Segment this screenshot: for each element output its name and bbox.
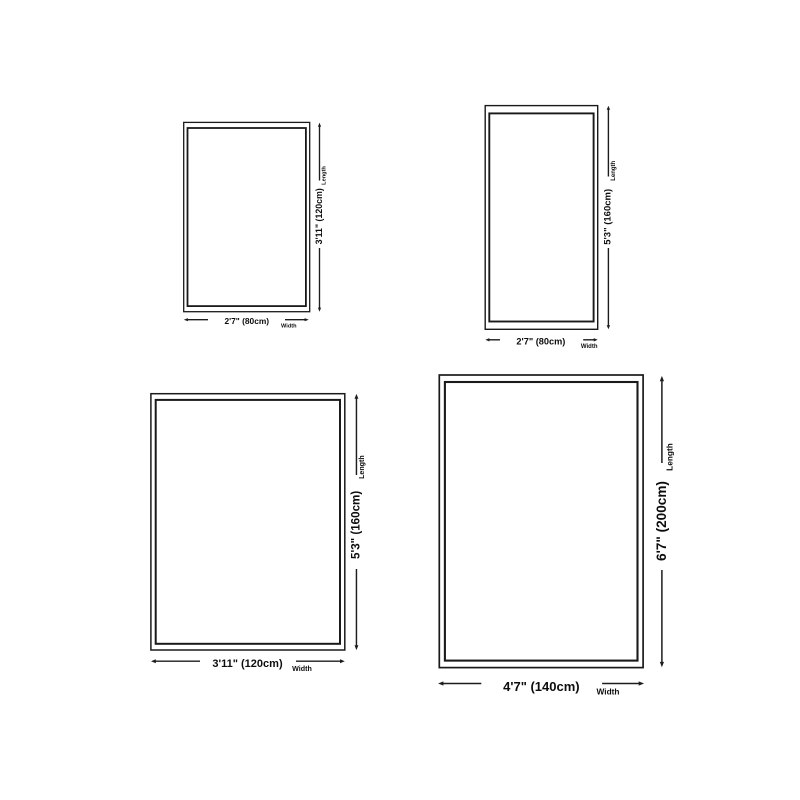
- svg-text:2'7" (80cm): 2'7" (80cm): [224, 316, 269, 326]
- svg-text:6'7" (200cm): 6'7" (200cm): [654, 481, 669, 561]
- svg-text:Length: Length: [611, 160, 617, 180]
- svg-text:Length: Length: [358, 455, 366, 479]
- svg-text:5'3" (160cm): 5'3" (160cm): [349, 491, 362, 559]
- svg-text:2'7" (80cm): 2'7" (80cm): [516, 337, 565, 347]
- svg-text:Width: Width: [581, 344, 598, 350]
- svg-text:3'11" (120cm): 3'11" (120cm): [212, 658, 283, 670]
- svg-text:Width: Width: [597, 687, 620, 697]
- svg-text:Width: Width: [281, 323, 297, 329]
- svg-text:Length: Length: [664, 443, 674, 471]
- svg-text:Width: Width: [292, 665, 312, 673]
- svg-text:5'3" (160cm): 5'3" (160cm): [602, 189, 613, 245]
- svg-text:4'7" (140cm): 4'7" (140cm): [503, 679, 579, 694]
- svg-text:Length: Length: [321, 166, 327, 185]
- svg-text:3'11" (120cm): 3'11" (120cm): [314, 188, 324, 244]
